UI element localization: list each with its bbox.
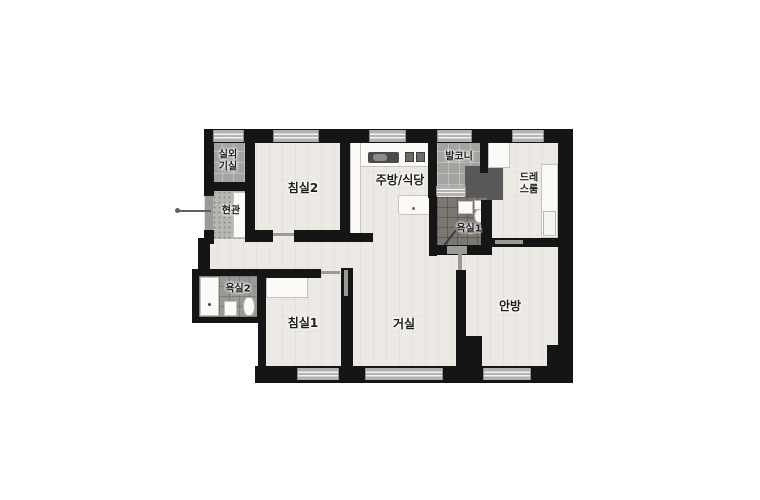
dining-island-table [398, 195, 433, 215]
dressroom-closet-top [488, 142, 510, 168]
cooktop-burner-2 [416, 152, 425, 162]
window-dressroom [512, 130, 544, 142]
window-bedroom2 [273, 130, 319, 142]
bathroom2-toilet [243, 297, 255, 316]
window-living-room [365, 368, 443, 380]
room-label-kitchen-dining: 주방/식당 [376, 174, 425, 188]
wall-outdoor-unit-bottom [204, 182, 246, 191]
wall-bedroom1-left [258, 269, 266, 375]
room-label-bedroom1: 침실1 [288, 317, 318, 331]
window-kitchen [369, 130, 406, 142]
room-label-master-bedroom: 안방 [499, 300, 521, 314]
wall-bedroom1-top [258, 269, 321, 278]
wall-master-corner-block [456, 336, 482, 368]
wall-kitchen-south-stub [340, 233, 373, 242]
bathtub [200, 277, 219, 316]
cooktop-burner-1 [405, 152, 414, 162]
bedroom2-door [273, 233, 294, 236]
dressroom-door [495, 240, 523, 244]
room-label-bedroom2: 침실2 [288, 182, 318, 196]
room-label-bathroom1: 욕실1 [456, 223, 481, 235]
window-master-bedroom [483, 368, 531, 380]
wall-left-corridor [198, 238, 210, 273]
bedroom1-door [321, 271, 340, 274]
front-door-line [178, 210, 211, 212]
dining-island-dot [412, 207, 415, 210]
balcony-door-window [436, 186, 466, 196]
wall-living-master [456, 270, 466, 340]
room-label-dress-room: 드레 스룸 [520, 173, 538, 196]
room-label-entrance: 현관 [222, 205, 240, 217]
kitchen-cabinet-strip [350, 142, 361, 235]
room-label-balcony: 발코니 [445, 151, 473, 163]
bedroom1-bed [266, 277, 308, 298]
wall-bedroom2-kitchen [340, 129, 350, 233]
wall-bedroom2-bottom-right [294, 230, 341, 242]
bathroom1-sink [458, 201, 473, 214]
room-label-outdoor-unit: 실외 기실 [219, 150, 237, 173]
bathtub-drain [208, 303, 211, 306]
front-door-hinge-dot [175, 208, 180, 213]
floor-plan: 실외 기실 현관 침실2 주방/식당 발코니 드레 스룸 욕실1 욕실2 침실1… [0, 0, 760, 500]
master-bedroom-door [458, 247, 462, 270]
window-bedroom1 [297, 368, 339, 380]
window-outdoor-unit [213, 130, 244, 142]
exterior-notch-mask [180, 322, 258, 384]
room-label-bathroom2: 욕실2 [225, 283, 250, 295]
bedroom1-open-door [344, 270, 348, 296]
wall-bedroom2-bottom-left [250, 230, 273, 242]
dressroom-wardrobe-inner [543, 211, 556, 236]
wall-entrance-bedroom2 [245, 129, 255, 242]
bathroom1-door [447, 246, 467, 254]
wall-balcony-right [480, 129, 488, 173]
bathroom2-sink [224, 301, 237, 316]
front-door [205, 196, 213, 232]
room-label-living-room: 거실 [393, 318, 415, 332]
window-balcony [437, 130, 472, 142]
kitchen-sink-basin [373, 154, 387, 161]
